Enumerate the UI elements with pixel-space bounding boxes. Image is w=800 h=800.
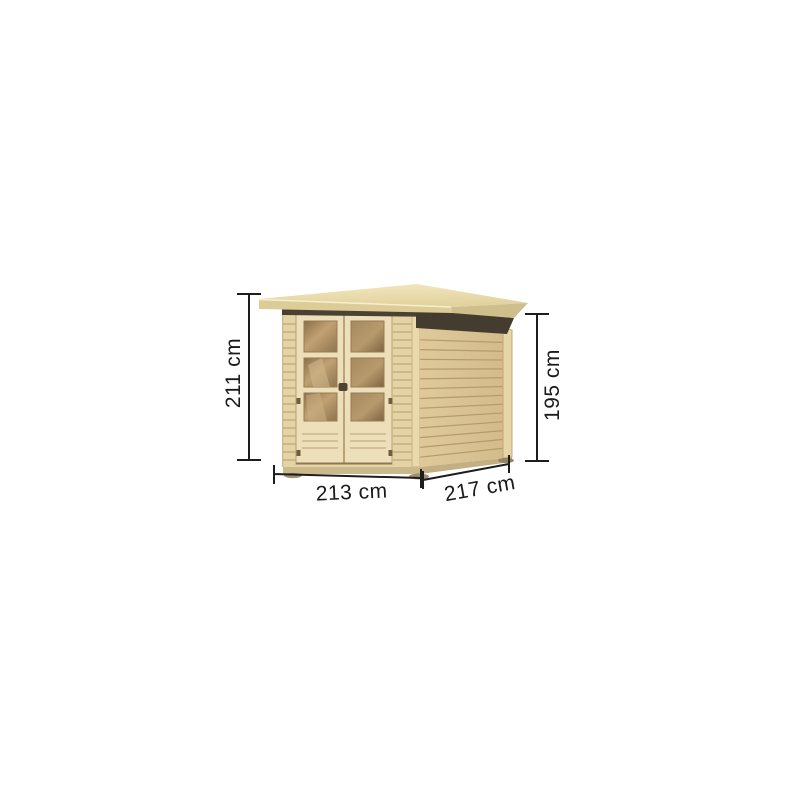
base-front <box>283 467 420 474</box>
door-hinge <box>297 450 301 456</box>
corner-board-rear <box>503 328 512 458</box>
door-hinge <box>389 398 393 404</box>
dimension-height-right: 195 cm <box>525 314 564 461</box>
corner-board-front <box>412 313 420 467</box>
door-hinge <box>389 450 393 456</box>
double-door <box>296 314 393 464</box>
dimension-label-front-width: 213 cm <box>315 479 388 505</box>
shed-illustration <box>259 284 528 480</box>
side-wall-panel <box>420 315 512 467</box>
dimension-label-overall-height: 211 cm <box>222 338 245 408</box>
door-hinge <box>297 398 301 404</box>
foot-shadow <box>498 458 514 463</box>
dimension-label-side-depth: 217 cm <box>442 471 517 506</box>
shed-diagram-svg: 211 cm 195 cm 213 cm 217 cm <box>0 0 800 800</box>
dimension-height-left: 211 cm <box>222 294 261 460</box>
product-dimension-image: 211 cm 195 cm 213 cm 217 cm <box>0 0 800 800</box>
dimension-label-wall-height: 195 cm <box>541 349 564 421</box>
door-glass-pane <box>351 393 384 421</box>
side-wall <box>420 315 512 467</box>
door-glass-pane <box>351 321 384 352</box>
door-glass-pane <box>351 358 384 387</box>
door-glass-pane <box>304 321 337 352</box>
door-handle <box>339 383 348 391</box>
